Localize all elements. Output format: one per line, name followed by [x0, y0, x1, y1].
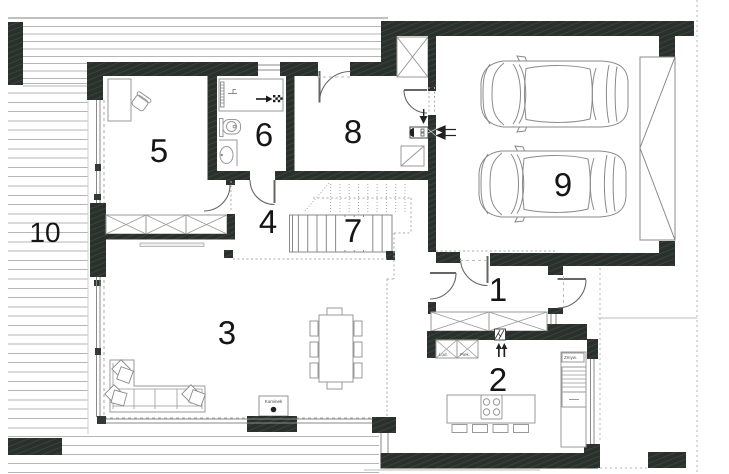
svg-text:Zmyw.: Zmyw. [564, 355, 577, 360]
svg-text:Piek.: Piek. [460, 352, 470, 357]
svg-text:Lod.: Lod. [439, 352, 448, 357]
svg-text:Kominek: Kominek [265, 399, 283, 404]
